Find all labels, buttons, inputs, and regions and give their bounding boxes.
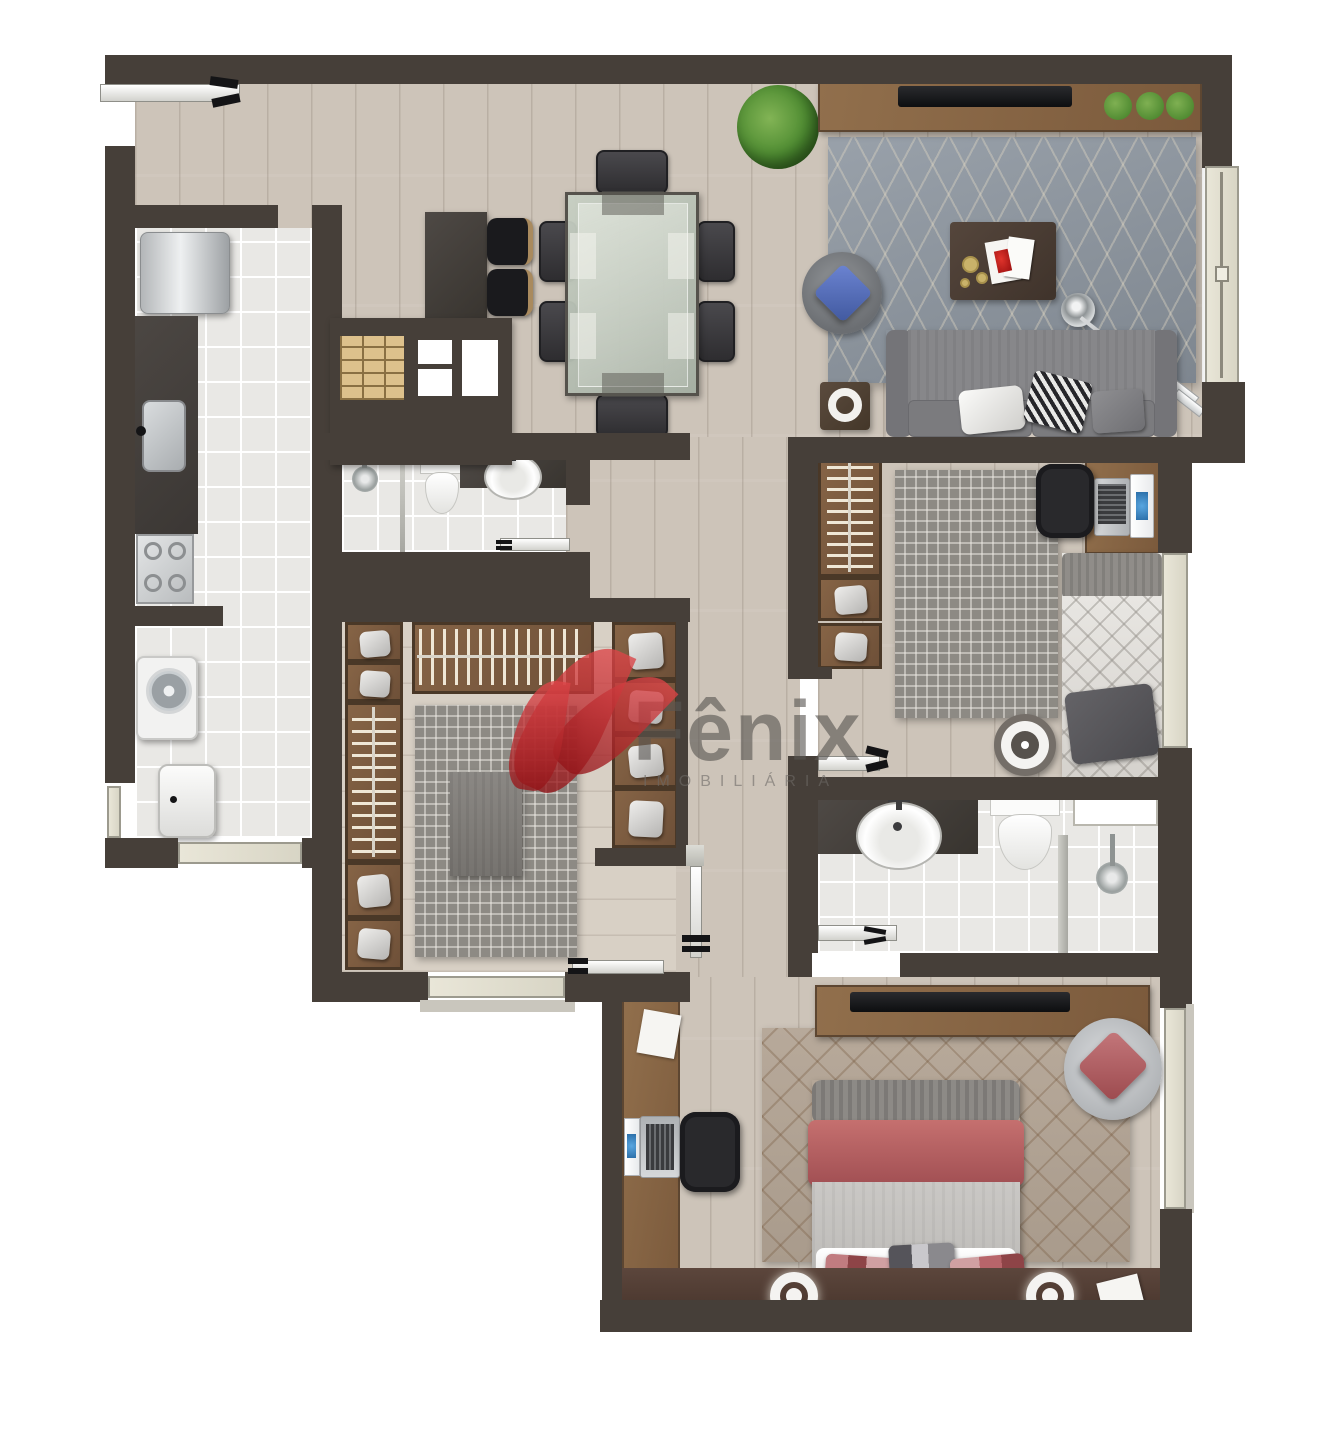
- shower-arm: [1110, 834, 1115, 866]
- bathroom2-bottom-wall: [788, 953, 812, 977]
- pillow-icon: [1091, 388, 1146, 434]
- washer-drum: [146, 668, 192, 714]
- bed-rose-blanket: [808, 1120, 1024, 1186]
- window-sill: [420, 1000, 575, 1012]
- folded-towel-icon: [357, 928, 391, 961]
- tray-dot: [1021, 741, 1029, 749]
- stove-burner: [168, 574, 186, 592]
- office-chair-icon: [1036, 464, 1094, 538]
- bathroom2-right-wall: [1158, 800, 1192, 953]
- door-handle: [682, 935, 710, 942]
- stove-burner: [144, 542, 162, 560]
- folded-towel-icon: [359, 630, 391, 659]
- bathroom2-bottom-wall: [900, 953, 1192, 977]
- exterior-wall-service: [302, 838, 312, 868]
- folded-towel-icon: [356, 873, 391, 908]
- tank-drain: [170, 796, 177, 803]
- wardrobe-shelf-icon: [345, 918, 403, 970]
- refrigerator-icon: [140, 232, 230, 314]
- dining-chair-icon: [596, 394, 668, 438]
- tv-icon: [850, 992, 1070, 1012]
- kitchen-partition-wall: [135, 606, 223, 626]
- door-handle: [496, 540, 512, 544]
- floor-plan: Fênix IMOBILIÁRIA: [0, 0, 1328, 1440]
- office-chair-icon: [680, 1112, 740, 1192]
- window-icon: [1073, 798, 1158, 826]
- door-handle: [496, 546, 512, 550]
- placemat: [602, 191, 664, 215]
- plant-icon: [1166, 92, 1194, 120]
- decor-dish: [960, 278, 970, 288]
- shower-head-icon: [1096, 862, 1128, 894]
- closet-bottom-wall: [565, 972, 690, 1002]
- placemat: [668, 313, 694, 359]
- exterior-wall-right: [1202, 382, 1245, 439]
- wardrobe-shelf-icon: [345, 622, 403, 662]
- dining-chair-icon: [697, 301, 735, 362]
- placemat: [602, 373, 664, 397]
- window-icon: [1162, 553, 1188, 748]
- laptop-keyboard: [1098, 484, 1126, 524]
- laptop-screen-content: [627, 1134, 636, 1158]
- dining-bathroom-wall: [312, 433, 690, 460]
- door-handle: [568, 968, 588, 974]
- wardrobe-hanging-rod-icon: [345, 702, 403, 862]
- bed-blanket-roll: [812, 1080, 1020, 1124]
- dining-table-icon: [565, 192, 699, 396]
- exterior-wall-right: [1202, 55, 1232, 168]
- rod-rail: [372, 707, 375, 857]
- window-icon: [107, 786, 121, 838]
- closet-bottom-wall: [312, 972, 428, 1002]
- balcony-sliding-door-icon: [1205, 166, 1239, 384]
- bedroom2-right-wall: [1158, 748, 1192, 777]
- pass-through-niche: [418, 340, 452, 364]
- paper-sheet-icon: [636, 1009, 681, 1059]
- placemat: [570, 313, 596, 359]
- table-glass-inner: [578, 203, 688, 387]
- exterior-wall-service: [105, 838, 178, 868]
- plant-icon: [1104, 92, 1132, 120]
- stove-burner: [168, 542, 186, 560]
- kitchen-wall: [135, 205, 278, 228]
- bar-counter-icon: [425, 212, 487, 322]
- sofa-icon: [886, 330, 1177, 437]
- shower-head-icon: [352, 466, 378, 492]
- pillow-icon: [1064, 683, 1160, 765]
- dining-chair-icon: [596, 150, 668, 194]
- glass-partition-icon: [1058, 835, 1068, 953]
- tv-icon: [898, 86, 1072, 107]
- dining-chair-icon: [697, 221, 735, 282]
- bar-stool-icon: [487, 218, 533, 265]
- kitchen-faucet-icon: [136, 426, 146, 436]
- placemat: [570, 233, 596, 279]
- pillow-icon: [958, 385, 1026, 435]
- watermark: Fênix IMOBILIÁRIA: [495, 615, 935, 825]
- slider-latch: [1215, 266, 1229, 282]
- laundry-tank-icon: [158, 764, 216, 838]
- watermark-subtitle: IMOBILIÁRIA: [643, 773, 838, 791]
- brick-panel: [340, 336, 404, 400]
- wardrobe-hanging-rod-icon: [818, 455, 882, 577]
- wardrobe-shelf-icon: [345, 662, 403, 702]
- decor-dish: [976, 272, 988, 284]
- kitchen-sink-icon: [142, 400, 186, 472]
- single-bed-icon: [1062, 553, 1162, 777]
- door-leaf-icon: [690, 866, 702, 958]
- pass-through-niche: [418, 369, 452, 396]
- bar-stool-icon: [487, 269, 533, 316]
- round-tray-icon: [994, 714, 1056, 776]
- door-handle: [682, 946, 710, 952]
- plant-icon: [1136, 92, 1164, 120]
- window-icon: [428, 976, 565, 998]
- closet-corner-wall: [595, 848, 690, 866]
- window-icon: [1164, 1008, 1186, 1209]
- window-icon: [178, 842, 302, 864]
- wardrobe-shelf-icon: [345, 862, 403, 918]
- pass-through-niche: [462, 340, 498, 396]
- exterior-wall-top: [105, 55, 1232, 84]
- master-bottom-wall: [600, 1300, 1192, 1332]
- folded-towel-icon: [359, 670, 391, 698]
- door-track: [686, 845, 704, 866]
- window-sill: [1186, 1004, 1194, 1213]
- rod-rail: [848, 460, 851, 572]
- exterior-wall-left: [105, 146, 135, 783]
- laptop-keyboard: [646, 1124, 674, 1170]
- folded-towel-icon: [834, 585, 868, 616]
- glass-partition-icon: [400, 458, 405, 552]
- laptop-screen-content: [1136, 492, 1148, 520]
- decor-dish: [962, 256, 979, 273]
- master-right-wall: [1160, 958, 1192, 1008]
- decor-tray-ring: [828, 388, 862, 422]
- bed-blanket-roll: [1062, 553, 1162, 599]
- bedroom2-right-wall: [1158, 437, 1192, 553]
- coffee-table-icon: [950, 222, 1056, 300]
- bathroom1-right-wall: [566, 433, 590, 505]
- bathroom1-bottom-wall: [312, 552, 590, 598]
- master-left-wall: [602, 997, 622, 1332]
- plant-icon: [737, 85, 819, 169]
- placemat: [668, 233, 694, 279]
- stove-icon: [136, 534, 194, 604]
- door-handle: [568, 958, 588, 964]
- stove-burner: [144, 574, 162, 592]
